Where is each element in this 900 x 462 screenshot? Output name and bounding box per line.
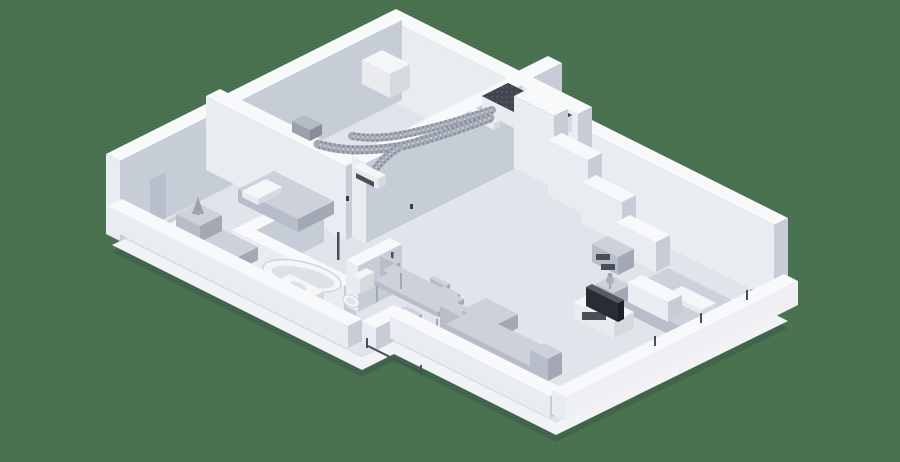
isometric-apartment-scene xyxy=(0,0,900,462)
wall-switch-hall-2 xyxy=(410,204,413,209)
window-frame-1 xyxy=(654,336,656,346)
wall-switch-hall-1 xyxy=(346,196,349,201)
window-frame-2 xyxy=(700,313,702,323)
door-frame-hall-1 xyxy=(337,232,340,260)
floor-plan-render: Isometric 3D cutaway render of an apartm… xyxy=(0,0,900,462)
window-frame-3 xyxy=(746,290,748,300)
